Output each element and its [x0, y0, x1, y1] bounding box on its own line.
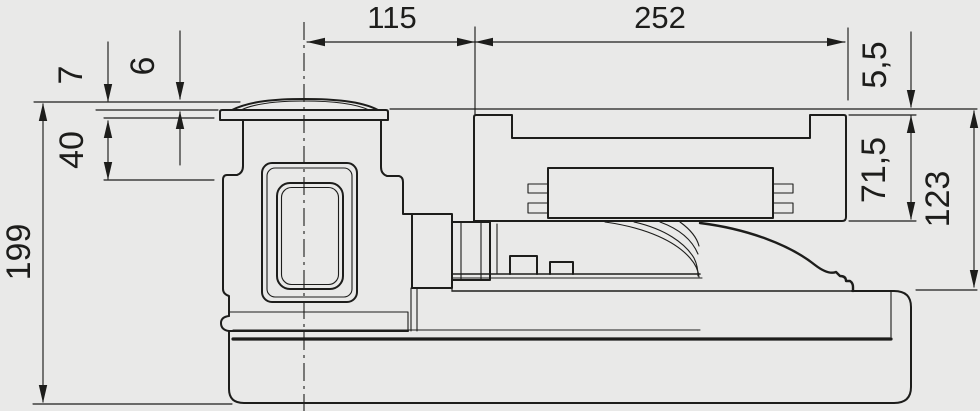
arrow-252-right — [827, 38, 845, 46]
outlet-pipe — [412, 214, 452, 288]
collar-support — [490, 222, 497, 280]
skirt-line — [229, 312, 408, 331]
motor-window-inner — [282, 188, 339, 285]
dim-label-123: 123 — [919, 171, 957, 228]
dim-label-199: 199 — [0, 224, 38, 281]
arrow-6-up — [176, 111, 184, 129]
arrow-71-5-down — [907, 202, 915, 220]
collar-thread-lines — [461, 222, 481, 280]
dim-label-7: 7 — [52, 66, 90, 85]
dimension-lines — [39, 31, 978, 403]
arrow-6-down — [176, 82, 184, 100]
base-tank — [229, 291, 911, 403]
arrow-123-up — [970, 110, 978, 128]
outlet-collar — [452, 222, 490, 280]
arrow-5-5-down — [907, 90, 915, 108]
arrow-40-up — [104, 120, 112, 138]
dim-label-252: 252 — [634, 0, 686, 35]
dim-label-5-5: 5,5 — [856, 41, 894, 88]
housing-left-wall — [223, 120, 243, 316]
dim-label-6: 6 — [124, 57, 162, 76]
latch-block-a — [510, 256, 537, 274]
arrow-40-down — [104, 162, 112, 180]
housing-left-foot — [221, 316, 229, 331]
cover-plate — [548, 168, 773, 218]
cover-plate-clips-left — [528, 184, 548, 213]
arrow-115-right — [457, 38, 475, 46]
arrow-7-down — [104, 84, 112, 102]
housing-right-wall — [381, 120, 412, 214]
dim-label-40: 40 — [53, 131, 91, 169]
arrow-71-5-up — [907, 115, 915, 133]
volute-outer-curve — [700, 223, 853, 291]
latch-block-b — [550, 262, 573, 274]
pump-body — [220, 99, 911, 403]
arrow-123-down — [970, 270, 978, 288]
dim-label-71-5: 71,5 — [855, 137, 893, 203]
cover-plate-clips-right — [773, 184, 793, 213]
arrow-115-left — [307, 38, 325, 46]
extension-lines — [33, 27, 977, 404]
technical-drawing: 115 252 7 6 40 199 5,5 71,5 123 — [0, 0, 980, 411]
volute-inner-curves — [605, 222, 699, 277]
arrow-252-left — [475, 38, 493, 46]
arrow-199-down — [39, 385, 47, 403]
motor-window-outer — [277, 183, 343, 289]
arrow-199-up — [39, 103, 47, 121]
dim-label-115: 115 — [367, 0, 416, 35]
